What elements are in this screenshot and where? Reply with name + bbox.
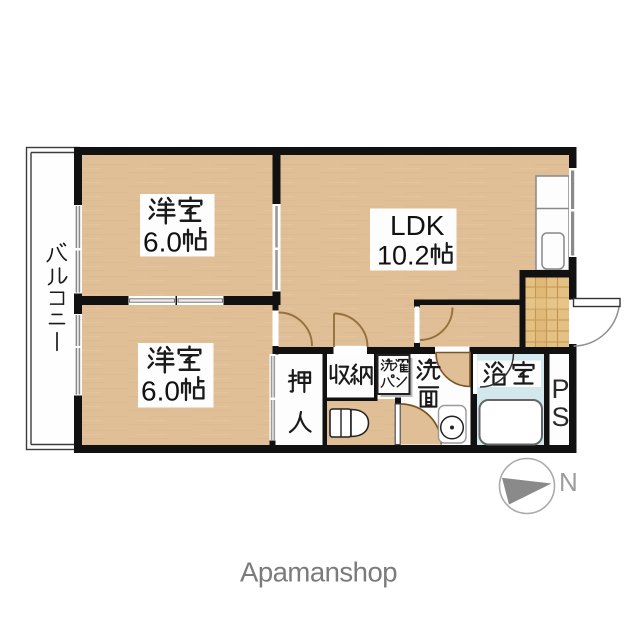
svg-text:LDK: LDK: [390, 210, 445, 241]
svg-text:6.0: 6.0: [141, 376, 180, 407]
svg-text:N: N: [559, 467, 578, 497]
svg-text:S: S: [552, 402, 570, 432]
svg-text:10.2: 10.2: [377, 241, 430, 271]
svg-text:P: P: [552, 374, 570, 404]
svg-text:6.0: 6.0: [143, 227, 182, 258]
svg-text:Apamanshop: Apamanshop: [240, 557, 397, 588]
